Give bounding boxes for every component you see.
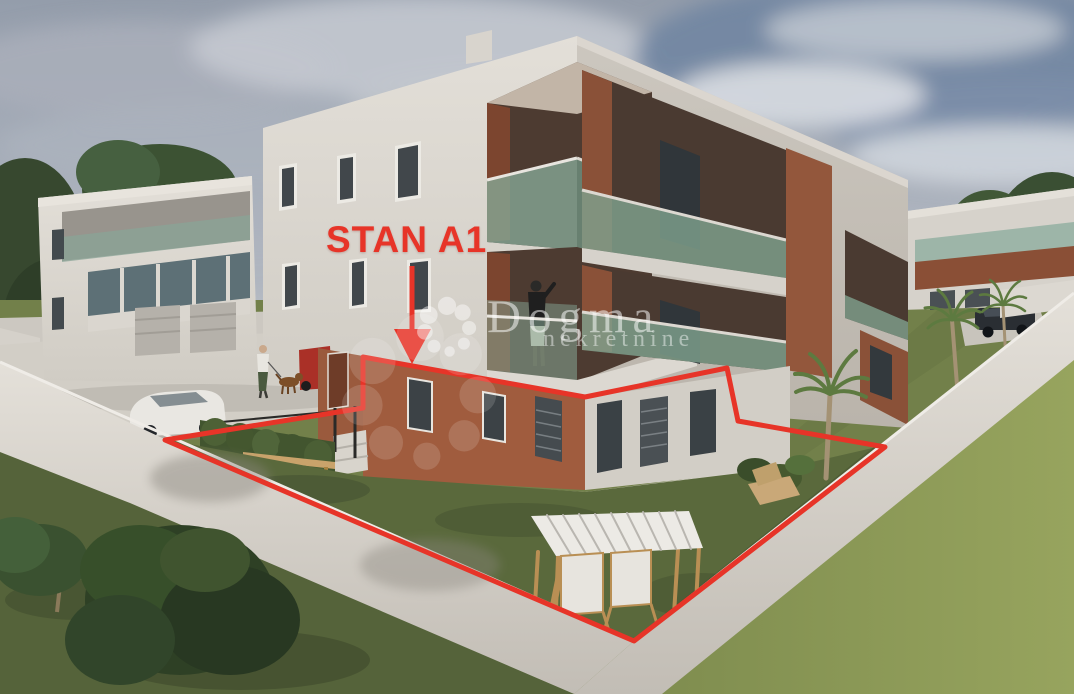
scene-render	[0, 0, 1074, 694]
render-canvas: STAN A1 Dogma nekretnine	[0, 0, 1074, 694]
left-building	[38, 176, 258, 385]
apartment-label: STAN A1	[326, 219, 487, 261]
entry-steps	[333, 430, 368, 476]
